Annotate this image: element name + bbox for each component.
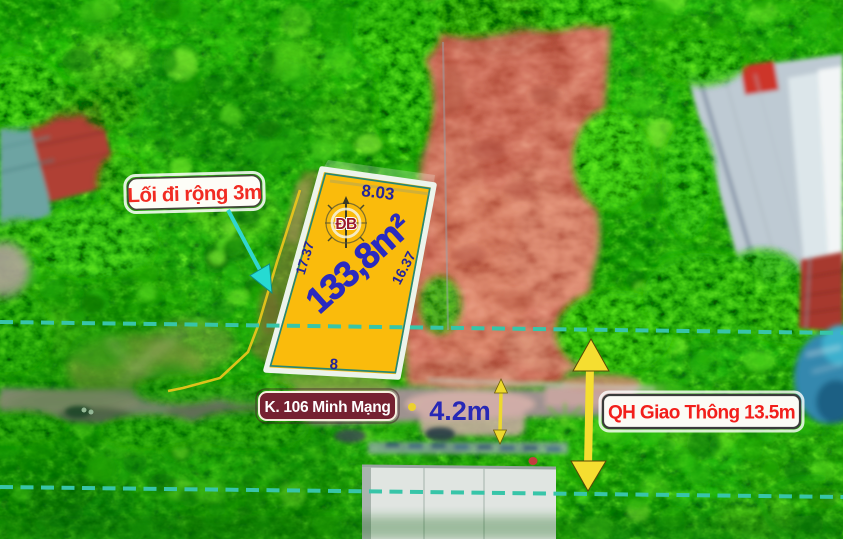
svg-text:8.03: 8.03 — [360, 181, 395, 204]
svg-text:QH Giao Thông 13.5m: QH Giao Thông 13.5m — [608, 403, 795, 424]
svg-text:8: 8 — [329, 356, 339, 374]
svg-text:Lối đi rộng 3m: Lối đi rộng 3m — [127, 181, 262, 208]
svg-text:ĐB: ĐB — [335, 216, 357, 233]
svg-text:4.2m: 4.2m — [429, 396, 491, 426]
svg-text:K. 106 Minh Mạng: K. 106 Minh Mạng — [264, 399, 390, 416]
